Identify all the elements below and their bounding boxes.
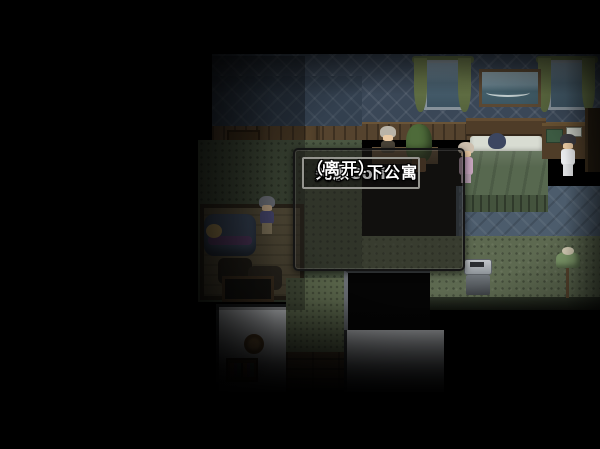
- curtain: [582, 58, 595, 112]
- door: [585, 108, 600, 172]
- floor-lamp: [566, 266, 569, 298]
- seascape-painting: [479, 69, 541, 107]
- lower-wall-center: [344, 330, 444, 392]
- bed-blanket: [464, 151, 548, 197]
- wall-emblem: [244, 334, 264, 354]
- appliance-body: [466, 275, 490, 295]
- choice-dialog-window: 关于Colin 光顾一下公寓 （离开）: [293, 148, 465, 271]
- curtain: [458, 58, 471, 112]
- sprite-legs: [563, 164, 573, 176]
- curtain: [414, 58, 427, 112]
- stair-opening: [344, 270, 430, 330]
- bed-headboard: [466, 118, 546, 136]
- left-room-shadow: [195, 56, 305, 310]
- dialog-option-leave[interactable]: （离开）: [307, 157, 375, 181]
- bed-ruffle: [464, 195, 548, 212]
- nurse-sprite: [558, 134, 578, 182]
- appliance-slot: [470, 262, 484, 267]
- lamp-cap: [562, 247, 574, 255]
- patient-sprite: [488, 133, 506, 149]
- game-screen: 关于Colin 光顾一下公寓 （离开）: [0, 0, 600, 449]
- sprite-body: [561, 149, 575, 165]
- small-shelf: [226, 358, 258, 382]
